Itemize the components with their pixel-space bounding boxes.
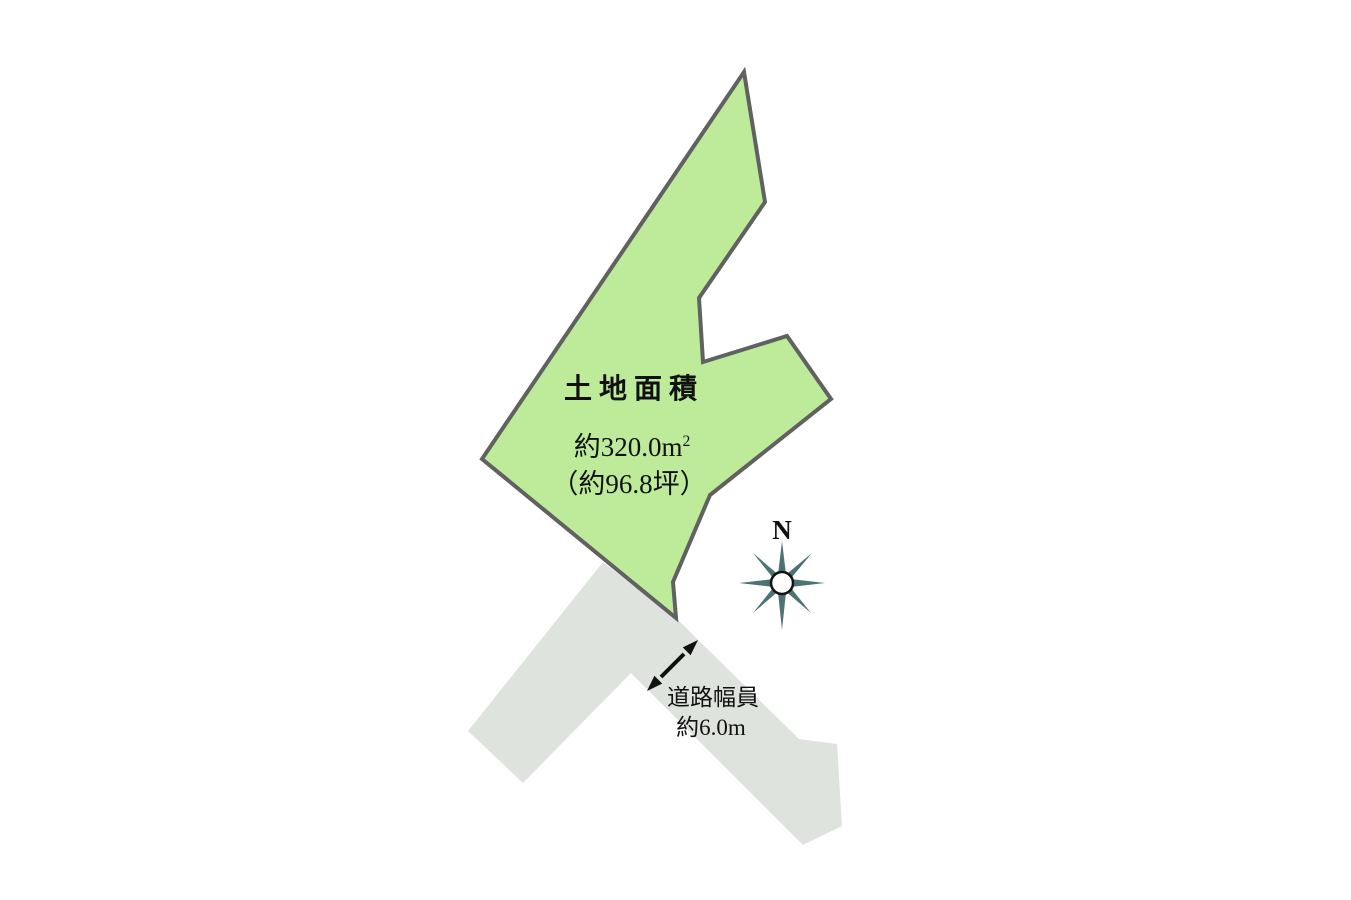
compass-center-circle: [771, 572, 793, 594]
road-width-value: 約6.0m: [611, 715, 811, 741]
plot-area-sqm: 約320.0m2: [482, 431, 782, 463]
plot-area-title: 土地面積: [484, 374, 784, 406]
plot-area-sqm-exponent: 2: [682, 433, 690, 450]
road-width-label: 道路幅員: [613, 685, 813, 711]
site-plan-canvas: 土地面積 約320.0m2 （約96.8坪） 道路幅員 約6.0m N: [0, 0, 1351, 900]
compass-rose-icon: [739, 541, 825, 630]
compass-north-label: N: [742, 516, 822, 545]
plot-area-sqm-unit: m: [661, 432, 682, 462]
plot-area-sqm-value: 約320.0: [574, 432, 662, 462]
plot-area-tsubo: （約96.8坪）: [479, 468, 779, 500]
